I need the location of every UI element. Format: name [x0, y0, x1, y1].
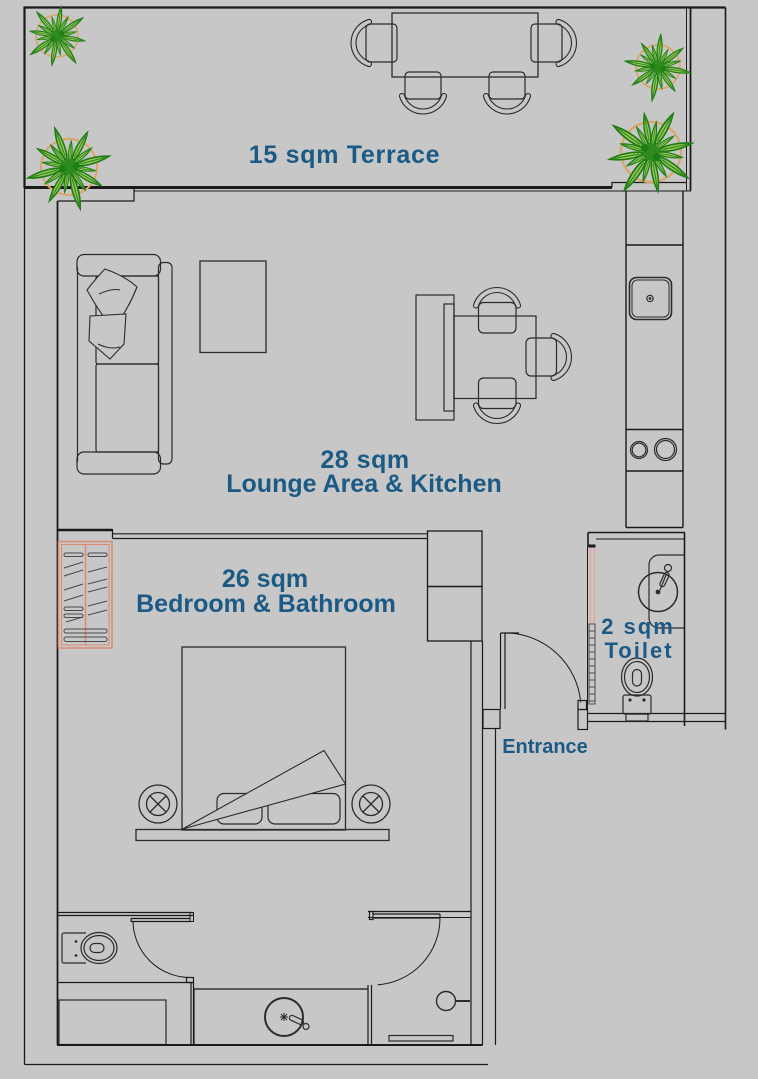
svg-text:Toilet: Toilet	[604, 638, 673, 663]
svg-text:2 sqm: 2 sqm	[601, 614, 675, 639]
svg-text:Entrance: Entrance	[502, 736, 588, 758]
svg-text:26 sqm: 26 sqm	[222, 565, 308, 593]
svg-text:15 sqm Terrace: 15 sqm Terrace	[249, 141, 440, 169]
svg-text:Bedroom & Bathroom: Bedroom & Bathroom	[136, 590, 396, 618]
svg-text:Lounge Area & Kitchen: Lounge Area & Kitchen	[226, 470, 502, 498]
